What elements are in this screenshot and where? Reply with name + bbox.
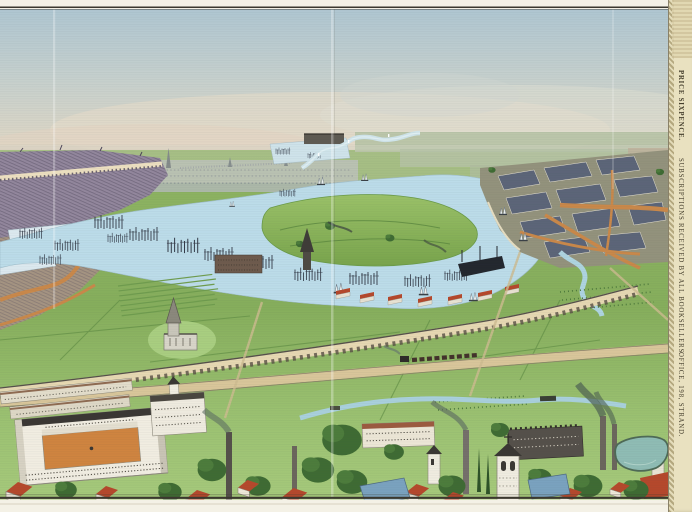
office-inscription: OFFICE, 198, STRAND.: [677, 352, 684, 437]
subscriptions-inscription: SUBSCRIPTIONS RECEIVED BY ALL BOOKSELLER…: [677, 158, 684, 356]
engraving-page: PRICE SIXPENCE. SUBSCRIPTIONS RECEIVED B…: [0, 0, 692, 512]
plate-edge-ornament: [668, 0, 674, 512]
price-inscription: PRICE SIXPENCE.: [677, 70, 684, 141]
margin-corner-ornament: [672, 0, 692, 58]
paper-margin: PRICE SIXPENCE. SUBSCRIPTIONS RECEIVED B…: [668, 0, 692, 512]
panorama-plate: [0, 0, 668, 512]
